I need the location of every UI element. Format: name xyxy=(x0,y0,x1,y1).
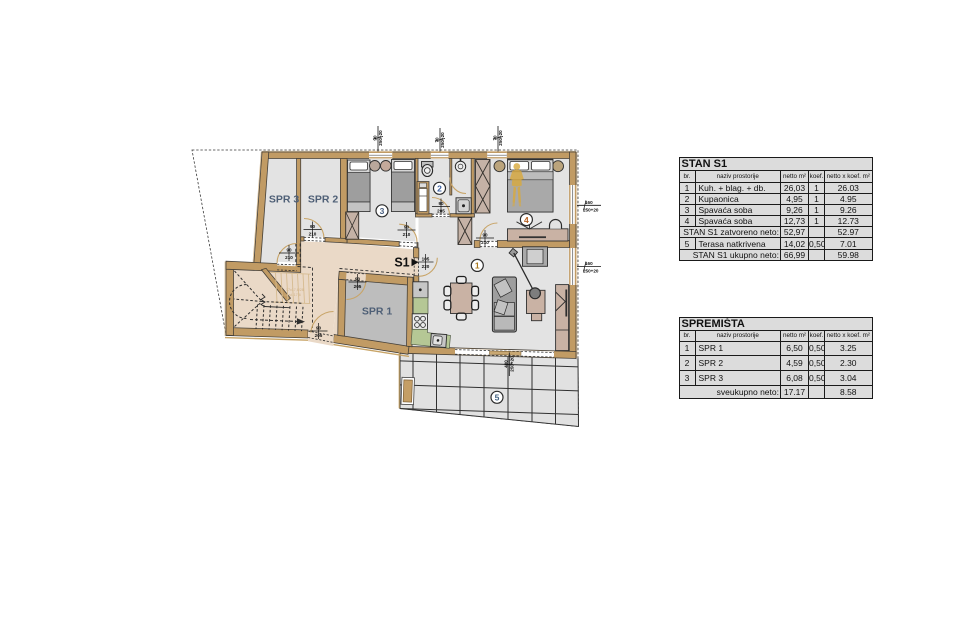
svg-text:17x17,6/28: 17x17,6/28 xyxy=(286,288,304,292)
svg-text:2: 2 xyxy=(437,184,442,194)
svg-text:400: 400 xyxy=(504,360,509,368)
svg-text:18 st. 17,6: 18 st. 17,6 xyxy=(284,293,301,297)
svg-text:70: 70 xyxy=(492,135,497,141)
svg-text:3: 3 xyxy=(380,206,385,216)
svg-text:4: 4 xyxy=(524,215,529,225)
svg-text:70: 70 xyxy=(434,137,439,143)
svg-text:SPR 2: SPR 2 xyxy=(308,194,339,206)
svg-text:5: 5 xyxy=(495,393,500,403)
svg-text:250+20: 250+20 xyxy=(583,207,599,212)
svg-text:250+20: 250+20 xyxy=(498,130,503,146)
svg-text:250+20: 250+20 xyxy=(509,356,514,372)
svg-text:160: 160 xyxy=(585,261,593,266)
svg-text:SPR 1: SPR 1 xyxy=(362,306,393,318)
svg-text:250+20: 250+20 xyxy=(440,132,445,148)
svg-text:S1: S1 xyxy=(394,256,409,270)
svg-text:90: 90 xyxy=(372,135,377,141)
svg-text:250+20: 250+20 xyxy=(583,269,599,274)
svg-text:160: 160 xyxy=(585,200,593,205)
svg-text:250+20: 250+20 xyxy=(378,130,383,146)
svg-text:SPR 3: SPR 3 xyxy=(269,194,300,206)
svg-text:1: 1 xyxy=(475,261,480,271)
